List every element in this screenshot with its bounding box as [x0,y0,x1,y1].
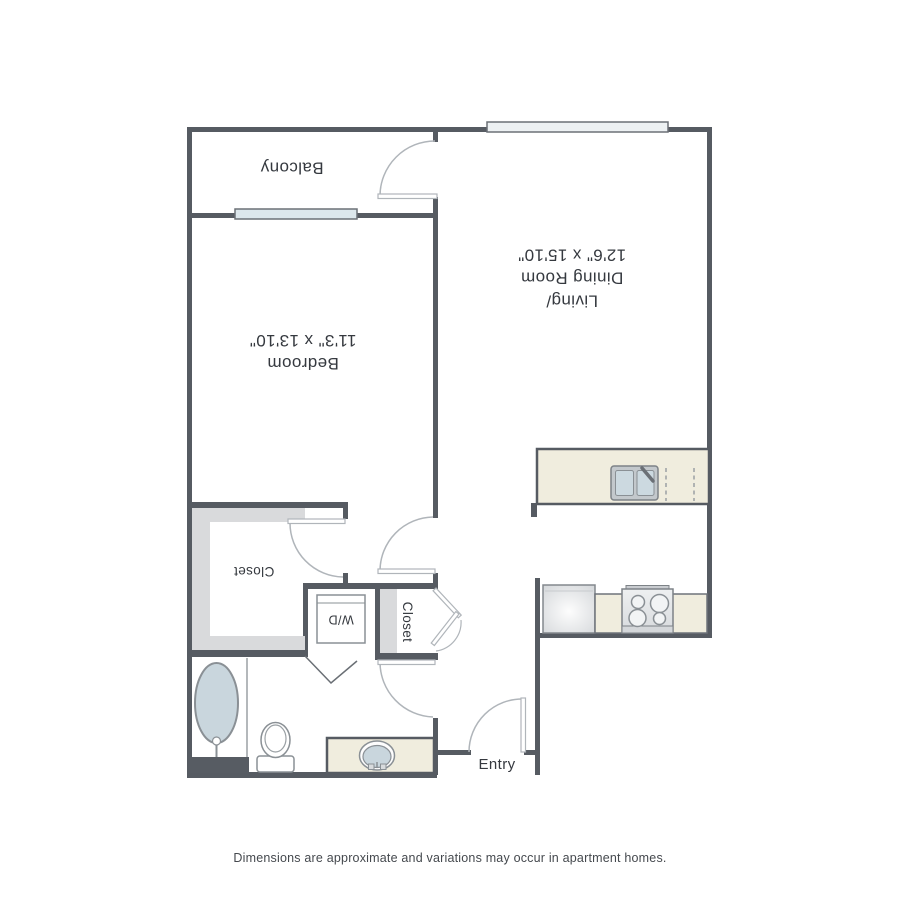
toilet-seat-inner [265,725,286,752]
wall-laundry-top [303,583,438,589]
living-room-window [487,122,668,132]
hall-closet-door [431,588,461,651]
stove-burner [632,596,645,609]
toilet-tank [257,756,294,772]
laundry-bifold-door [305,656,357,683]
living-label-line1: Living/ [518,288,626,311]
walkin-closet-label: Closet [234,562,275,580]
stove-bottom-bar [622,626,673,633]
balcony-door [378,141,437,199]
door-leaf [378,569,435,574]
sink-basin-left [616,471,634,496]
door-swing-arc [290,523,343,577]
wall-main-vertical-stub [433,127,438,142]
bedroom-label-text: Bedroom [249,351,356,374]
walkin-closet-label-text: Closet [234,562,275,580]
entry-label: Entry [478,755,515,775]
stove-icon [622,586,673,634]
stove-burner [651,595,669,613]
window-glass [487,122,668,132]
disclaimer-text: Dimensions are approximate and variation… [233,851,666,865]
washer-dryer-label-text: W/D [328,611,354,628]
entry-label-text: Entry [478,755,515,775]
living-dining-label: Living/ Dining Room 12'6" x 15'10" [518,243,626,312]
living-dimensions: 12'6" x 15'10" [518,243,626,266]
door-swing-arc [380,517,433,571]
bedroom-label: Bedroom 11'3" x 13'10" [249,328,356,374]
wall-entry-bottom-stub [524,750,540,755]
wall-right [707,127,712,638]
wall-laundry-divider [375,589,380,653]
refrigerator-body [543,585,595,633]
bathtub-icon [195,663,238,757]
faucet-handle [369,764,375,770]
bedroom-door [378,517,435,574]
bifold-lines [305,656,357,683]
living-label-line2: Dining Room [518,266,626,289]
window-glass [235,209,357,219]
door-swing-arc [380,141,435,196]
wall-left [187,127,192,778]
door-leaf [378,660,435,665]
interior-walls [187,127,537,775]
vanity-sink-icon [327,738,434,773]
bedroom-dimensions: 11'3" x 13'10" [249,328,356,351]
wall-main-vertical [433,197,438,518]
hall-closet-label: Closet [398,602,416,643]
wall-entry-bottom-left [433,750,471,755]
floorplan-drawing [0,0,900,900]
bathroom-counter [189,757,249,773]
shelf-bottom [192,636,305,650]
door-leaf [378,194,437,199]
wall-closet-hinge-stub [343,502,348,519]
door-leaf [288,519,345,524]
wall-hallcloset-bottom [375,653,438,660]
floorplan-canvas: Balcony Bedroom 11'3" x 13'10" Living/ D… [0,0,900,900]
faucet-handle [381,764,387,770]
balcony-label-text: Balcony [260,156,323,179]
shelf-left [192,508,210,650]
door-swing-arc [380,662,433,717]
walkin-closet-door [288,519,345,577]
washer-dryer-label: W/D [328,611,354,628]
wall-closet-top [187,502,348,508]
bathroom-door [378,660,435,717]
bathtub-basin [195,663,238,743]
kitchen-sink-icon [611,466,658,500]
balcony-label: Balcony [260,156,323,179]
stove-burner [629,610,646,627]
door-swing-arc [469,699,523,752]
balcony-window [235,209,357,219]
hall-closet-shelf [380,589,397,653]
entry-door [469,698,526,752]
wall-entry-right [535,578,540,775]
hall-closet-label-text: Closet [398,602,416,643]
refrigerator-icon [543,585,595,633]
toilet-icon [257,723,294,773]
bathtub-drain [213,737,221,745]
stove-burner [654,613,666,625]
wall-walkin-bottom [187,650,308,657]
door-leaf [521,698,526,752]
